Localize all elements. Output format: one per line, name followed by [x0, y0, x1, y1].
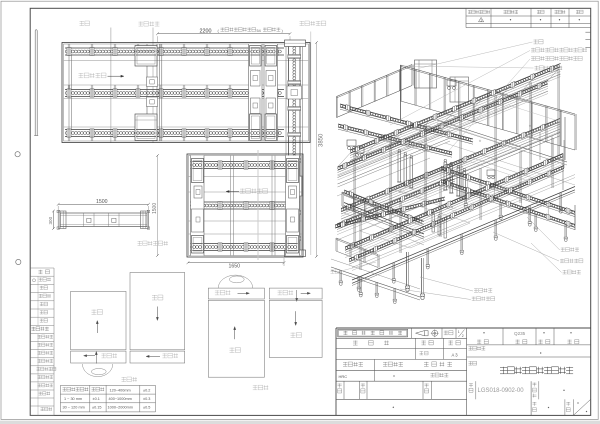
svg-text:LGS018-0902-00: LGS018-0902-00 — [478, 388, 525, 394]
svg-text:2200: 2200 — [200, 28, 212, 34]
svg-text:±0.2: ±0.2 — [143, 388, 150, 392]
svg-text:±0.15: ±0.15 — [92, 406, 101, 410]
svg-text:300: 300 — [48, 216, 53, 224]
svg-text:1500: 1500 — [152, 203, 158, 214]
svg-text:±0.1: ±0.1 — [93, 397, 100, 401]
svg-text:1650: 1650 — [229, 263, 241, 269]
svg-text:1: 1 — [480, 18, 482, 22]
svg-text:1000~2000mm: 1000~2000mm — [108, 406, 133, 410]
svg-text:30 ~ 120 mm: 30 ~ 120 mm — [63, 406, 85, 410]
svg-text:3850: 3850 — [319, 133, 325, 147]
svg-text:±0.3: ±0.3 — [143, 397, 150, 401]
svg-text:120~400mm: 120~400mm — [110, 388, 131, 392]
svg-text:±0.5: ±0.5 — [143, 406, 150, 410]
svg-text:HRC: HRC — [339, 374, 348, 379]
svg-text:Q235: Q235 — [514, 331, 526, 336]
svg-text:1 ~ 30 mm: 1 ~ 30 mm — [64, 397, 82, 401]
svg-text:400~1000mm: 400~1000mm — [109, 397, 132, 401]
svg-text:1: 1 — [458, 330, 460, 334]
svg-text:54: 54 — [257, 29, 261, 33]
svg-text:1500: 1500 — [96, 199, 108, 205]
svg-text:2: 2 — [462, 334, 464, 338]
svg-text:A 3: A 3 — [452, 352, 459, 357]
